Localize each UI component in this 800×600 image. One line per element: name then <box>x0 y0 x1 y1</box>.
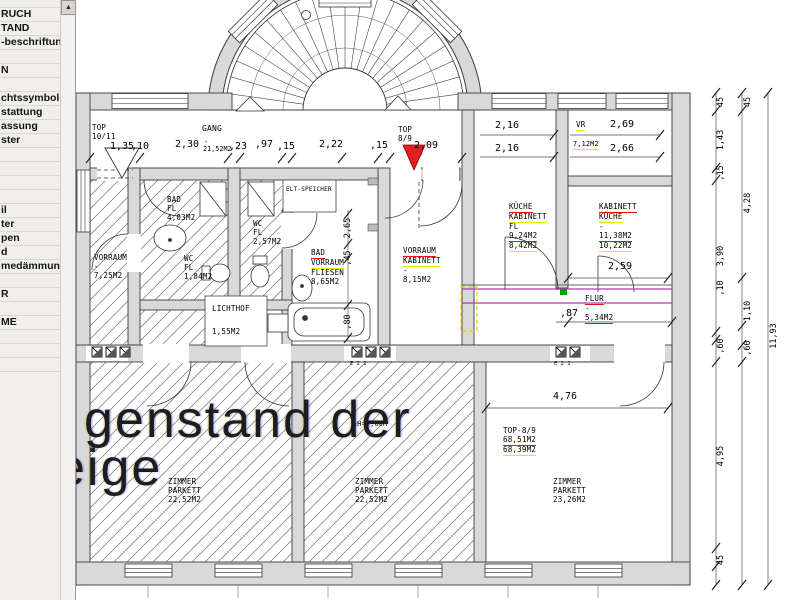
sidebar-item[interactable]: ME <box>0 316 60 330</box>
panel-divider[interactable] <box>75 0 76 600</box>
sidebar-item[interactable] <box>0 302 60 316</box>
sidebar-item[interactable]: pen <box>0 232 60 246</box>
sidebar-item[interactable]: ster <box>0 134 60 148</box>
sidebar-item[interactable]: -beschriftung <box>0 36 60 50</box>
sidebar-item[interactable] <box>0 274 60 288</box>
sidebar-item[interactable]: N <box>0 64 60 78</box>
cad-application-window: TOP10/11GANGTOP8/9VR7,12M2BADFL4,03M2WCF… <box>0 0 800 600</box>
top-8-9-entry-marker-icon <box>403 145 425 170</box>
flur-green-marker <box>560 289 567 295</box>
sidebar-item[interactable]: stattung <box>0 106 60 120</box>
stair-window-right <box>412 0 461 43</box>
sidebar-item[interactable]: TAND <box>0 22 60 36</box>
stair-window-top <box>319 0 371 7</box>
sidebar-item[interactable]: R <box>0 288 60 302</box>
sidebar-list: RUCHTAND-beschriftungNchtssymbolestattun… <box>0 7 60 372</box>
layer-panel: RUCHTAND-beschriftungNchtssymbolestattun… <box>0 0 60 600</box>
sidebar-item[interactable]: RUCH <box>0 8 60 22</box>
sidebar-item[interactable] <box>0 358 60 372</box>
stair-direction-arrow <box>385 96 411 110</box>
toilet <box>210 264 230 282</box>
sidebar-item[interactable]: chtssymbole <box>0 92 60 106</box>
stair-axis-node <box>302 11 311 20</box>
sidebar-item[interactable]: d <box>0 246 60 260</box>
scroll-up-button[interactable]: ▲ <box>61 0 76 15</box>
sidebar-item[interactable] <box>0 330 60 344</box>
sidebar-item[interactable] <box>0 50 60 64</box>
sidebar-item[interactable]: medämmung <box>0 260 60 274</box>
sidebar-item[interactable]: il <box>0 204 60 218</box>
pedestal-sink <box>292 275 312 301</box>
sidebar-item[interactable] <box>0 344 60 358</box>
sidebar-item[interactable] <box>0 78 60 92</box>
panel-scrollbar[interactable]: ▲ <box>60 0 75 600</box>
sidebar-item[interactable] <box>0 148 60 162</box>
floorplan-canvas[interactable] <box>0 0 800 600</box>
staircase <box>208 0 482 111</box>
stair-direction-arrow <box>236 97 264 111</box>
sidebar-item[interactable]: assung <box>0 120 60 134</box>
toilet-tank <box>202 266 210 280</box>
washbasin <box>154 225 186 251</box>
sidebar-item[interactable] <box>0 162 60 176</box>
toilet <box>251 265 269 287</box>
sidebar-item[interactable]: ter <box>0 218 60 232</box>
stair-window-left <box>228 0 277 43</box>
scroll-up-arrow-icon: ▲ <box>65 4 72 11</box>
sidebar-item[interactable] <box>0 190 60 204</box>
toilet-tank <box>253 256 267 264</box>
sidebar-item[interactable] <box>0 176 60 190</box>
